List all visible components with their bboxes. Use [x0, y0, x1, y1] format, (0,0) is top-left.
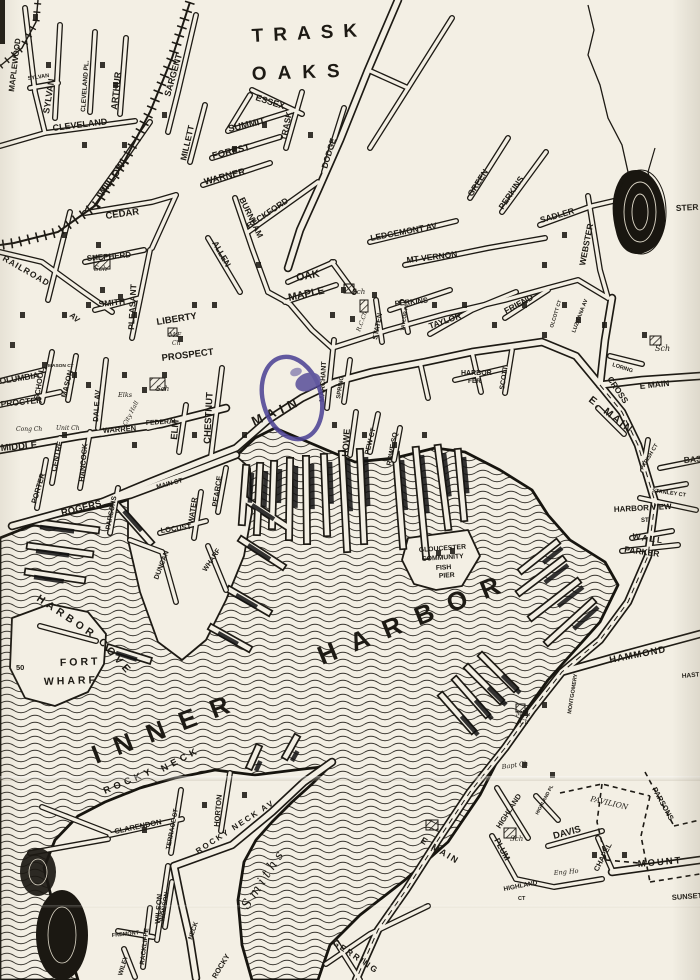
map-label: Unit Ch: [56, 425, 80, 432]
map-label: STER: [676, 202, 699, 213]
map-label: Ch: [172, 340, 181, 347]
map-label: FISH: [436, 564, 452, 572]
map-label: SUNSET: [672, 891, 700, 902]
map-label: PIER: [439, 572, 455, 580]
map-label: HARBOR: [461, 370, 492, 377]
map-label: Sch: [655, 344, 670, 353]
map-label: BASS: [683, 453, 700, 465]
map-label: CT: [518, 896, 526, 902]
map-label: Cong Ch: [16, 426, 42, 433]
map-label: FORT: [60, 656, 101, 669]
map-svg: TRASKOAKSMAPLEWOODSYLVANSYLVANCLEVELAND …: [0, 0, 700, 980]
map-label: WHARF: [44, 674, 98, 688]
map-label: OAKS: [251, 61, 351, 85]
map-label: ELM: [169, 419, 182, 440]
map-label: HOWE: [340, 429, 352, 458]
map-label: MASON CT: [48, 363, 74, 369]
map-label: Elks: [117, 391, 133, 399]
map-label: Ch: [520, 719, 529, 726]
map-label: M.E.: [515, 711, 530, 718]
map-label: Sch: [156, 385, 169, 393]
map-label: Sch: [352, 288, 365, 296]
map-label: ST: [641, 518, 649, 524]
map-label: Sch: [510, 835, 523, 843]
map-label: Sch: [94, 265, 107, 273]
map-label: M.E.: [168, 332, 183, 339]
map-label: FER: [468, 378, 481, 385]
dark-cove: [36, 890, 88, 980]
map-label: 50: [16, 663, 24, 672]
map-canvas: TRASKOAKSMAPLEWOODSYLVANSYLVANCLEVELAND …: [0, 0, 700, 980]
